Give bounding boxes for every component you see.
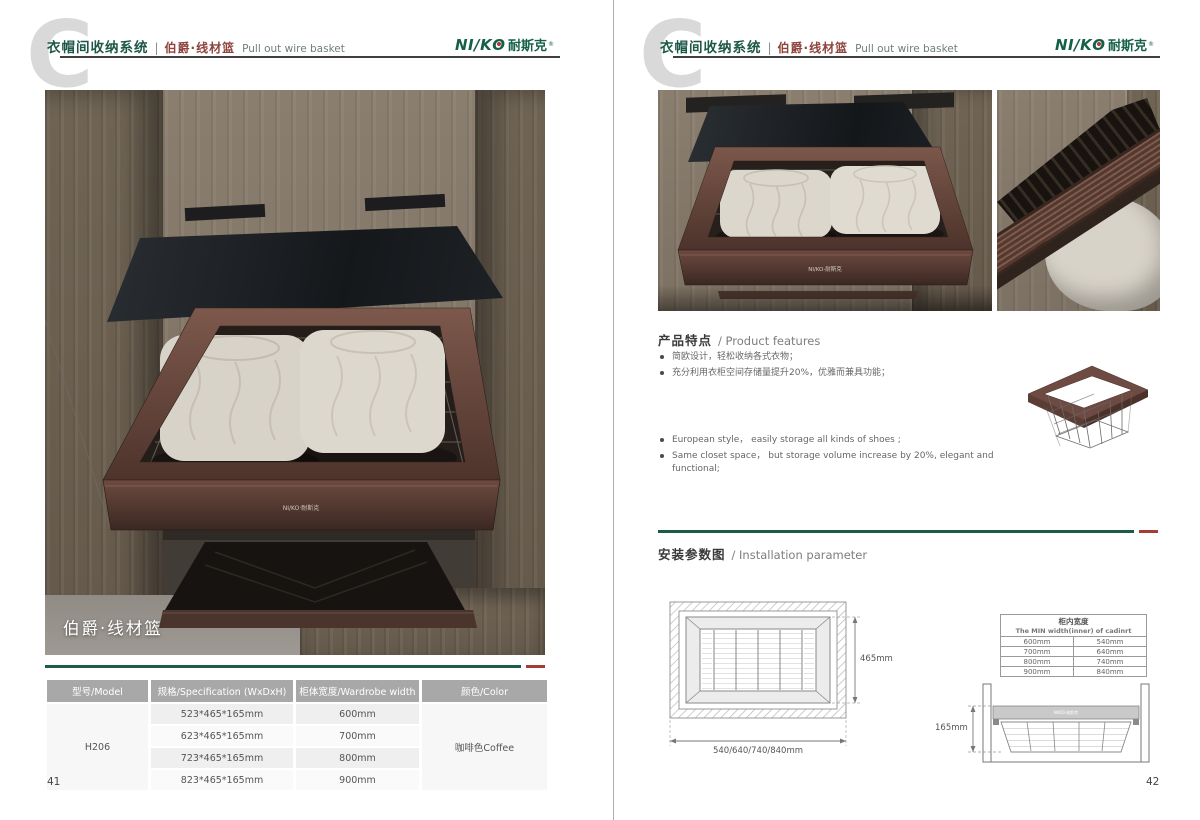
header-product-cn: 伯爵·线材篮 <box>778 39 849 56</box>
col-width: 柜体宽度/Wardrobe width <box>296 680 419 702</box>
installation-title-cn: 安装参数图 <box>658 544 726 563</box>
header-rule <box>673 56 1160 58</box>
wire-basket-illustration: NI/KO·耐斯克 <box>658 90 992 311</box>
width-cell: 800mm <box>296 748 419 768</box>
spec-cell: 723*465*165mm <box>151 748 293 768</box>
divider-green-left <box>45 665 521 668</box>
basket-front-logo: NI/KO·耐斯克 <box>808 265 842 273</box>
brand-logo-cn: 耐斯克 <box>508 35 547 54</box>
col-model: 型号/Model <box>47 680 148 702</box>
registered-mark-icon: ® <box>548 41 554 48</box>
feature-text: Same closet space， but storage volume in… <box>672 450 1005 475</box>
inner-width: 640mm <box>1074 647 1147 657</box>
side-view-drawing: NI/KO·耐斯克 165mm <box>935 680 1163 772</box>
feature-bullet-cn: 简欧设计，轻松收纳各式衣物； <box>660 351 990 364</box>
width-cell: 600mm <box>296 704 419 724</box>
features-title-cn: 产品特点 <box>658 330 712 349</box>
catalog-spread: C 衣帽间收纳系统 | 伯爵·线材篮 Pull out wire basket … <box>0 0 1200 820</box>
bullet-icon <box>660 355 664 359</box>
table-row: 800mm 740mm <box>1001 657 1147 667</box>
brand-logo-o-icon: O <box>492 36 505 54</box>
page-center-divider <box>613 0 614 820</box>
basket-front-logo: NI/KO·耐斯克 <box>1054 709 1078 715</box>
feature-text: 充分利用衣柜空间存储量提升20%，优雅而兼具功能； <box>672 367 890 380</box>
feature-text: 简欧设计，轻松收纳各式衣物； <box>672 351 798 364</box>
col-spec: 规格/Specification (WxDxH) <box>151 680 293 702</box>
width-cell: 700mm <box>296 726 419 746</box>
inner-width: 540mm <box>1074 637 1147 647</box>
cabinet-width: 600mm <box>1001 637 1074 647</box>
table-row: 600mm 540mm <box>1001 637 1147 647</box>
features-title: 产品特点 / Product features <box>658 330 820 349</box>
header-category: 衣帽间收纳系统 <box>660 36 762 56</box>
divider-green-right <box>658 530 1134 533</box>
wire-basket-illustration: NI/KO·耐斯克 <box>45 90 545 655</box>
divider-red-right <box>1139 530 1158 533</box>
bullet-icon <box>660 454 664 458</box>
spec-table-header-row: 型号/Model 规格/Specification (WxDxH) 柜体宽度/W… <box>47 680 547 702</box>
dim-height-label: 165mm <box>935 723 965 733</box>
brand-logo-text: NI/K <box>1055 36 1092 54</box>
width-table-header: 柜内宽度 The MIN width(inner) of cadinrt <box>1001 615 1147 637</box>
header-product-en: Pull out wire basket <box>242 43 345 55</box>
header-product-cn: 伯爵·线材篮 <box>165 39 236 56</box>
table-row: 700mm 640mm <box>1001 647 1147 657</box>
header-separator: | <box>768 41 772 55</box>
installation-title: 安装参数图 / Installation parameter <box>658 544 867 563</box>
registered-mark-icon: ® <box>1148 41 1154 48</box>
features-title-en: / Product features <box>718 334 820 348</box>
brand-logo-text: NI/K <box>455 36 492 54</box>
header-rule <box>60 56 560 58</box>
width-cell: 900mm <box>296 770 419 790</box>
spec-cell: 523*465*165mm <box>151 704 293 724</box>
installation-title-en: / Installation parameter <box>732 548 868 562</box>
top-view-drawing: 465mm 540/640/740/840mm <box>662 598 892 763</box>
model-cell: H206 <box>47 704 148 790</box>
bullet-icon <box>660 438 664 442</box>
brand-logo-cn: 耐斯克 <box>1108 35 1147 54</box>
basket-front-logo: NI/KO·耐斯克 <box>283 504 320 512</box>
wire-basket-render <box>1012 334 1160 462</box>
spec-table: 型号/Model 规格/Specification (WxDxH) 柜体宽度/W… <box>44 678 550 792</box>
width-table-title-en: The MIN width(inner) of cadinrt <box>1001 627 1146 635</box>
feature-bullet-cn: 充分利用衣柜空间存储量提升20%，优雅而兼具功能； <box>660 367 990 380</box>
dim-width-label: 540/640/740/840mm <box>670 746 846 756</box>
header-separator: | <box>155 41 159 55</box>
dim-height-label: 465mm <box>860 654 893 664</box>
feature-text: European style， easily storage all kinds… <box>672 434 901 447</box>
detail-photo-top-view: NI/KO·耐斯克 <box>658 90 992 311</box>
table-row: H206 523*465*165mm 600mm 咖啡色Coffee <box>47 704 547 724</box>
bottom-shadow <box>658 285 992 311</box>
spec-cell: 623*465*165mm <box>151 726 293 746</box>
cabinet-width: 700mm <box>1001 647 1074 657</box>
brand-logo: NI/KO 耐斯克 ® <box>455 35 554 54</box>
photo-caption: 伯爵·线材篮 <box>63 615 163 639</box>
cabinet-width: 800mm <box>1001 657 1074 667</box>
cabinet-width-table: 柜内宽度 The MIN width(inner) of cadinrt 600… <box>1000 614 1147 677</box>
divider-red-left <box>526 665 545 668</box>
feature-bullet-en: Same closet space， but storage volume in… <box>660 450 1005 475</box>
col-color: 颜色/Color <box>422 680 547 702</box>
product-thumbnail <box>1012 334 1160 462</box>
inner-width: 740mm <box>1074 657 1147 667</box>
table-row: 900mm 840mm <box>1001 667 1147 677</box>
cabinet-width: 900mm <box>1001 667 1074 677</box>
page-header-right: 衣帽间收纳系统 | 伯爵·线材篮 Pull out wire basket <box>660 36 958 56</box>
page-number-right: 42 <box>1146 776 1159 788</box>
feature-bullet-en: European style， easily storage all kinds… <box>660 434 1005 447</box>
header-category: 衣帽间收纳系统 <box>47 36 149 56</box>
page-header-left: 衣帽间收纳系统 | 伯爵·线材篮 Pull out wire basket <box>47 36 345 56</box>
width-table-title-cn: 柜内宽度 <box>1001 616 1146 627</box>
side-view-svg: NI/KO·耐斯克 <box>935 680 1163 772</box>
header-product-en: Pull out wire basket <box>855 43 958 55</box>
top-view-svg <box>662 598 892 763</box>
color-cell: 咖啡色Coffee <box>422 704 547 790</box>
brand-logo: NI/KO 耐斯克 ® <box>1055 35 1154 54</box>
brand-logo-o-icon: O <box>1092 36 1105 54</box>
detail-photo-corner <box>997 90 1160 311</box>
main-product-photo: NI/KO·耐斯克 伯爵·线材篮 <box>45 90 545 655</box>
bullet-icon <box>660 371 664 375</box>
width-table-title: 柜内宽度 The MIN width(inner) of cadinrt <box>1001 615 1147 637</box>
page-number-left: 41 <box>47 776 60 788</box>
inner-width: 840mm <box>1074 667 1147 677</box>
spec-cell: 823*465*165mm <box>151 770 293 790</box>
